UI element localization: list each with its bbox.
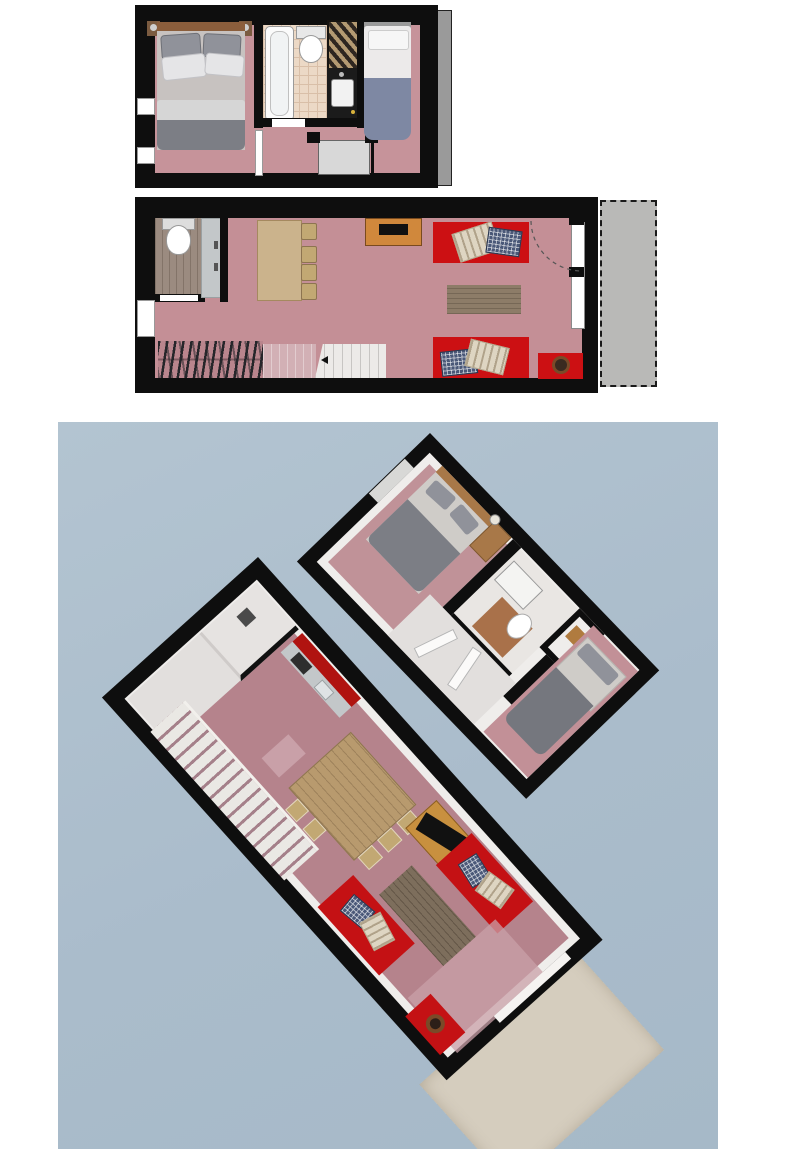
tv bbox=[379, 224, 408, 235]
toilet bbox=[296, 26, 324, 62]
dining-chair bbox=[301, 223, 317, 240]
pillow bbox=[161, 53, 207, 81]
bedside-lamp-icon bbox=[150, 24, 157, 31]
double-bed bbox=[157, 22, 245, 150]
bathtub bbox=[265, 26, 294, 121]
appliance-mark bbox=[214, 263, 218, 271]
area-rug bbox=[447, 285, 521, 314]
sofa bbox=[433, 222, 529, 263]
railing bbox=[371, 143, 374, 174]
dining-chair bbox=[301, 246, 317, 263]
main-floor-2d-plan bbox=[135, 197, 662, 395]
partition-wall bbox=[254, 5, 263, 128]
floorplan-sheet bbox=[0, 0, 790, 1152]
single-bed bbox=[364, 22, 411, 140]
loft-edge-hatching bbox=[158, 341, 263, 378]
faucet-icon bbox=[339, 72, 344, 77]
door-opening bbox=[160, 295, 198, 301]
stair-direction-arrow-icon bbox=[321, 356, 328, 364]
window bbox=[137, 147, 155, 164]
landing-platform bbox=[318, 140, 370, 175]
door-leaf-3d bbox=[447, 647, 482, 691]
dining-chair bbox=[301, 264, 317, 281]
exterior-gray-strip bbox=[437, 10, 452, 186]
blanket bbox=[157, 120, 245, 150]
outer-wall bbox=[135, 197, 598, 393]
wc-room bbox=[155, 218, 201, 294]
toilet-3d bbox=[236, 607, 256, 627]
dining-chair bbox=[301, 283, 317, 300]
railing-post bbox=[307, 132, 320, 143]
side-table bbox=[538, 353, 583, 379]
headboard bbox=[157, 22, 245, 31]
wood-stove bbox=[552, 356, 570, 374]
wood-stove-3d bbox=[422, 1010, 449, 1037]
door-opening bbox=[272, 119, 305, 127]
dollhouse-3d-view bbox=[58, 422, 718, 1149]
door-leaf bbox=[255, 130, 263, 176]
pillow bbox=[368, 30, 409, 50]
window bbox=[137, 98, 155, 115]
sofa bbox=[433, 337, 529, 378]
dining-table bbox=[257, 220, 302, 301]
outer-wall bbox=[135, 5, 438, 188]
throw-pillow bbox=[485, 227, 522, 257]
partition-wall bbox=[220, 218, 228, 302]
appliance-mark bbox=[214, 241, 218, 249]
terrace-dashed bbox=[600, 200, 657, 387]
blanket bbox=[364, 78, 411, 140]
tv-stand bbox=[365, 218, 422, 246]
kitchen-counter bbox=[201, 218, 221, 298]
vanity bbox=[327, 68, 358, 121]
window bbox=[137, 300, 155, 337]
upper-floor-2d-plan bbox=[135, 5, 455, 190]
sink bbox=[331, 79, 354, 107]
stairs-faded bbox=[263, 344, 316, 378]
bathtub-basin bbox=[270, 31, 289, 116]
door-leaf-3d bbox=[414, 629, 458, 658]
door-swing-arc bbox=[530, 220, 584, 274]
pillow bbox=[204, 52, 245, 77]
toilet-bowl bbox=[299, 35, 323, 63]
knob-icon bbox=[351, 110, 355, 114]
toilet-bowl bbox=[166, 225, 191, 255]
